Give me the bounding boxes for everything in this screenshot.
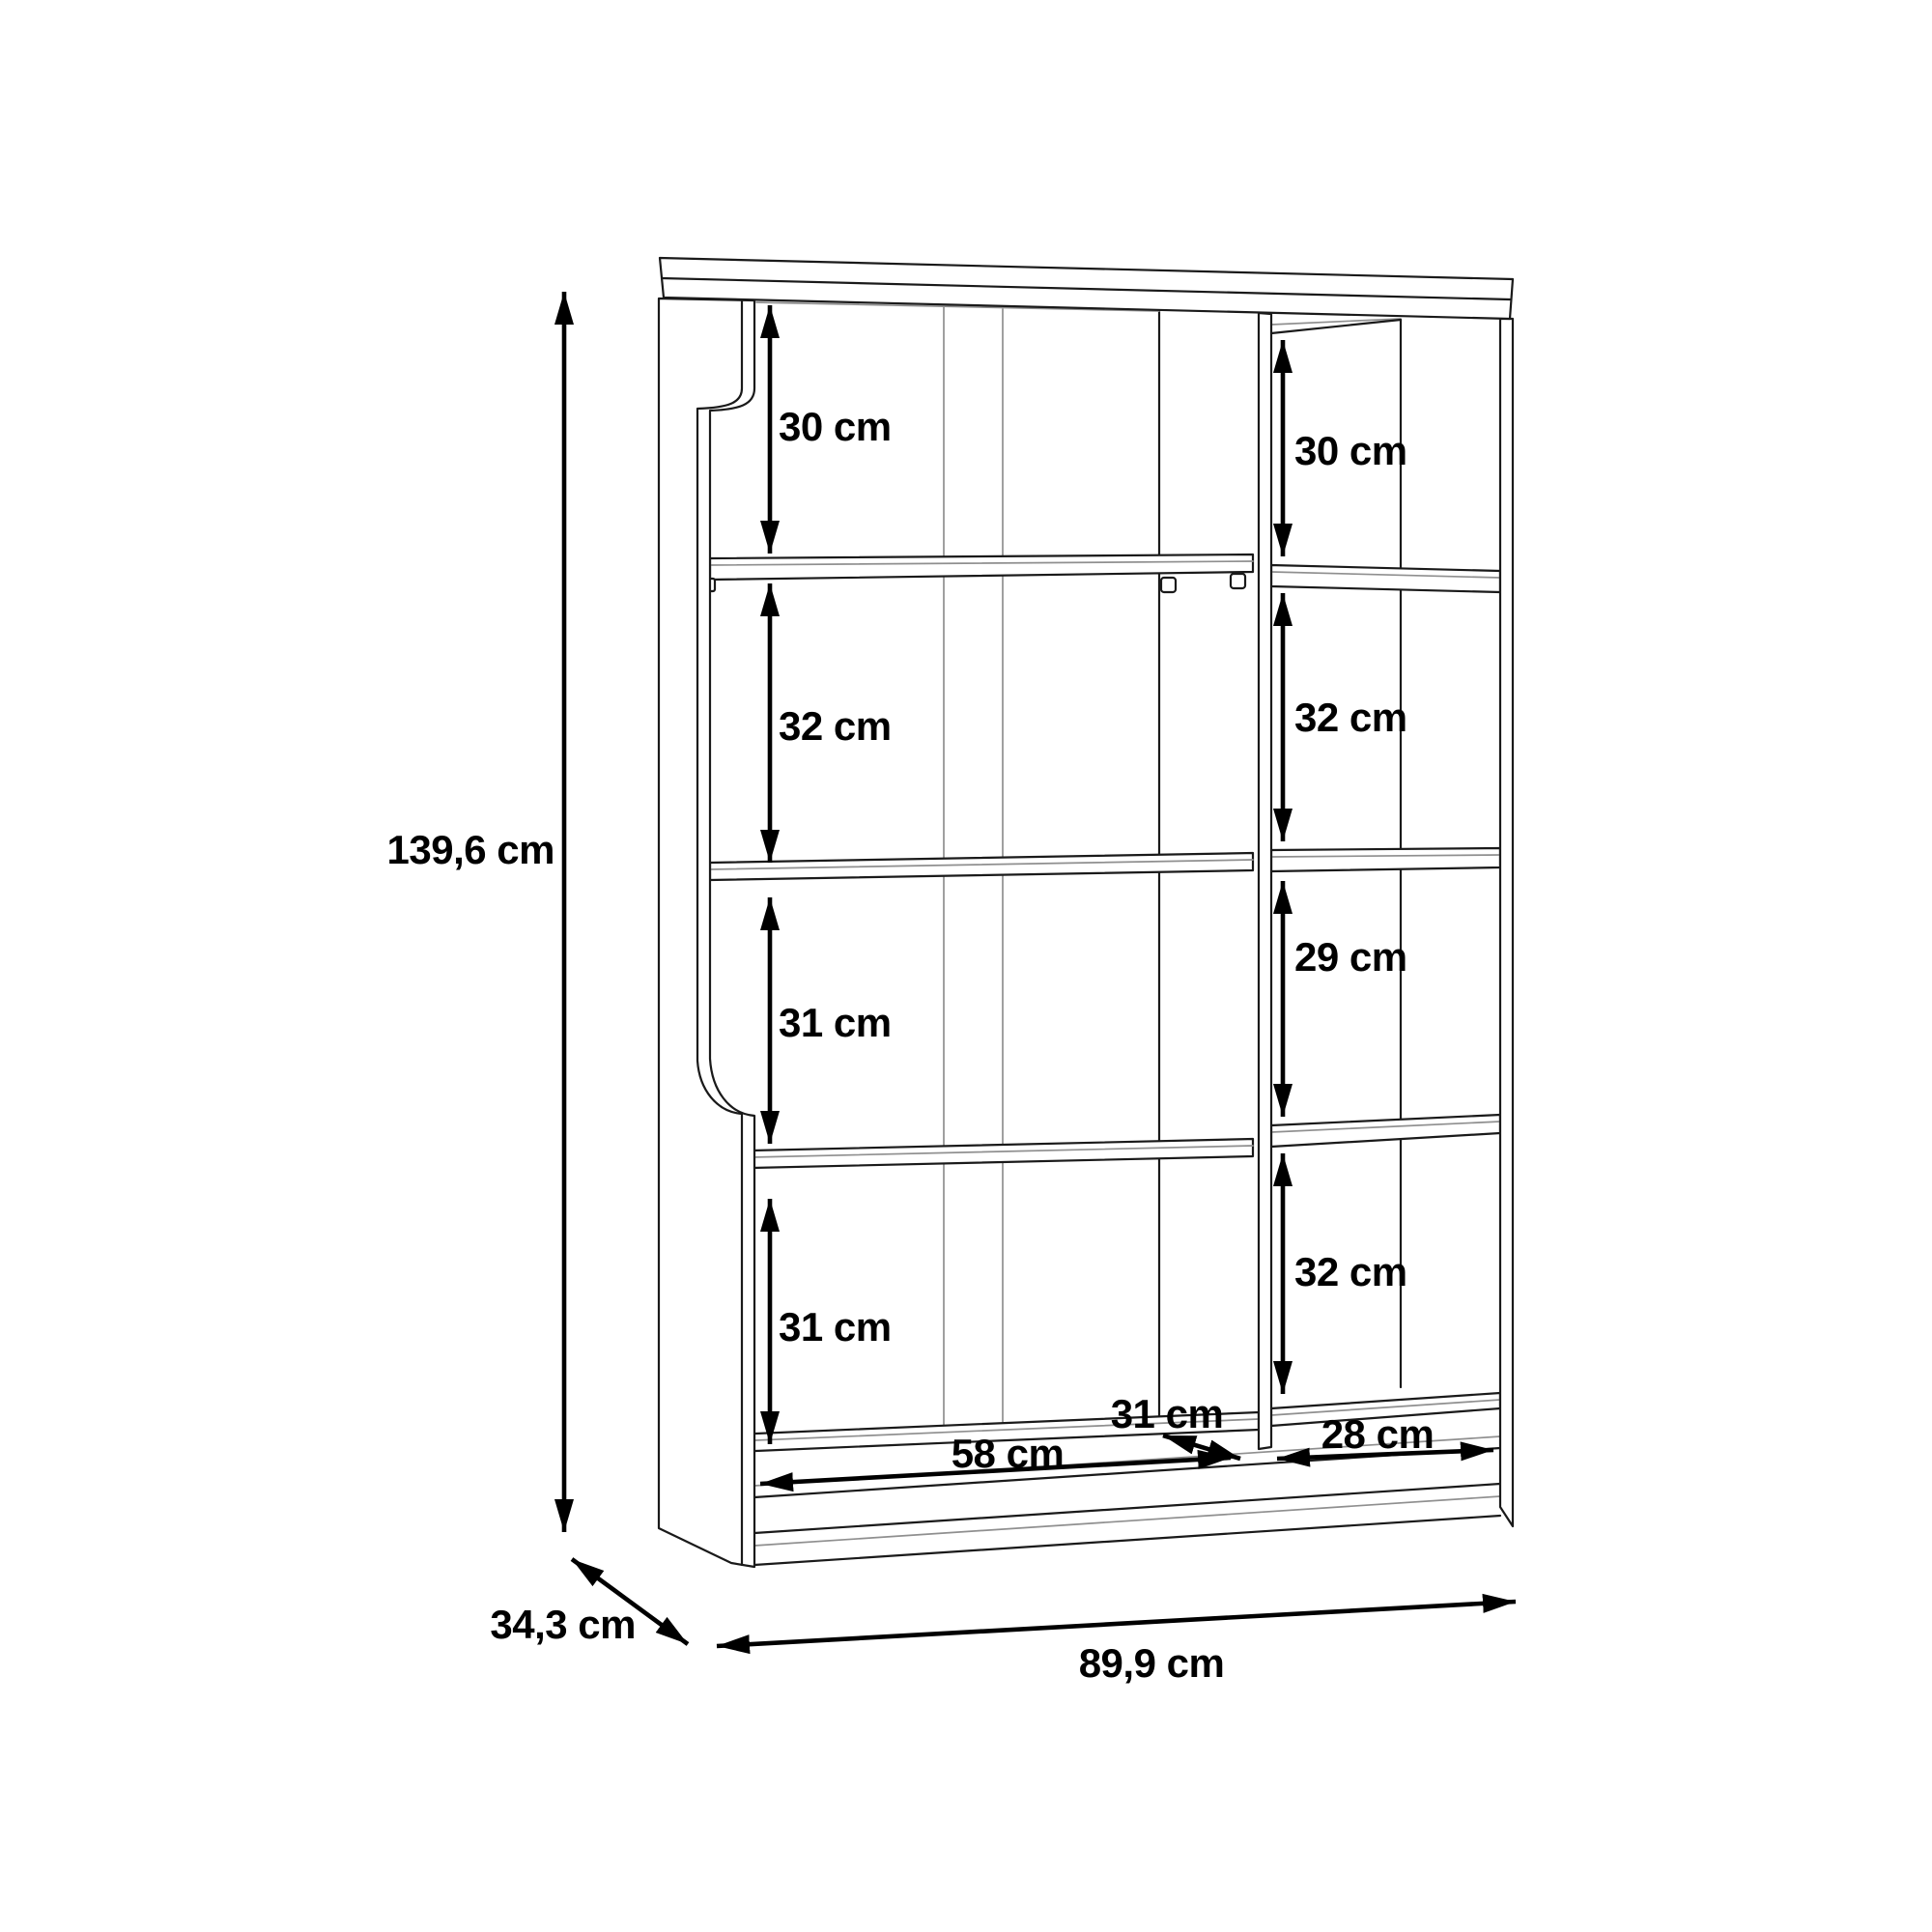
middle-divider <box>1259 313 1271 1449</box>
right-section-label-3: 29 cm <box>1294 934 1407 980</box>
right-section-label-2: 32 cm <box>1294 695 1407 740</box>
right-section-label-4: 32 cm <box>1294 1249 1407 1294</box>
left-section-label-1: 30 cm <box>779 404 892 449</box>
inner-width-left-label: 58 cm <box>952 1431 1065 1476</box>
divider-depth-label: 31 cm <box>1111 1391 1224 1436</box>
right-section-label-1: 30 cm <box>1294 428 1407 473</box>
width-dimension-label: 89,9 cm <box>1079 1640 1225 1686</box>
left-section-label-2: 32 cm <box>779 703 892 749</box>
left-section-label-4: 31 cm <box>779 1304 892 1350</box>
shelf-support-peg <box>1231 574 1245 588</box>
height-dimension-label: 139,6 cm <box>387 827 554 872</box>
shelf <box>1271 848 1500 871</box>
shelf-support-peg <box>1161 578 1176 592</box>
dimension-labels: 139,6 cm 34,3 cm 89,9 cm 30 cm 32 cm 31 … <box>387 404 1435 1686</box>
plinth-line <box>754 1484 1500 1533</box>
dimension-diagram-page: 139,6 cm 34,3 cm 89,9 cm 30 cm 32 cm 31 … <box>0 0 1932 1932</box>
cabinet-dimension-drawing: 139,6 cm 34,3 cm 89,9 cm 30 cm 32 cm 31 … <box>0 0 1932 1932</box>
left-side-panel-face <box>659 298 754 1567</box>
shelf <box>710 1139 1253 1169</box>
plinth-bottom-line <box>754 1516 1500 1565</box>
left-side-panel <box>659 298 754 1567</box>
depth-dimension-label: 34,3 cm <box>490 1602 636 1647</box>
right-side-panel <box>1500 319 1513 1526</box>
left-section-label-3: 31 cm <box>779 1000 892 1045</box>
plinth-line <box>754 1496 1500 1546</box>
shelf <box>710 853 1253 880</box>
shelf <box>1271 565 1500 592</box>
shelf <box>710 554 1253 580</box>
inner-width-right-label: 28 cm <box>1321 1411 1435 1457</box>
divider-depth-arrow <box>1163 1435 1240 1459</box>
